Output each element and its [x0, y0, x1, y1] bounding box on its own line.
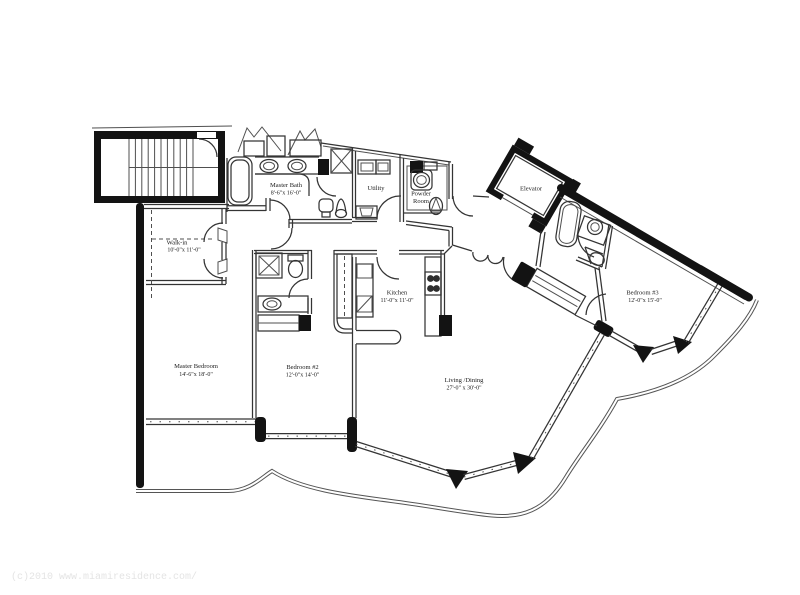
svg-text:10'-0"x 11'-0": 10'-0"x 11'-0" — [167, 248, 201, 254]
svg-text:11'-0"x 11'-0": 11'-0"x 11'-0" — [380, 298, 414, 304]
svg-text:12'-0"x 14'-0": 12'-0"x 14'-0" — [286, 373, 320, 379]
svg-text:Utility: Utility — [368, 185, 386, 192]
svg-text:Living /Dining: Living /Dining — [445, 377, 485, 384]
svg-text:Master Bedroom: Master Bedroom — [174, 363, 218, 370]
svg-text:Powder: Powder — [411, 191, 432, 198]
svg-text:Elevator: Elevator — [520, 186, 543, 193]
svg-text:8'-6"x 16'-0": 8'-6"x 16'-0" — [271, 191, 302, 197]
svg-text:Bedroom #3: Bedroom #3 — [626, 290, 658, 297]
svg-text:27'-0" x 30'-0": 27'-0" x 30'-0" — [446, 386, 482, 392]
svg-text:12'-0"x 15'-0": 12'-0"x 15'-0" — [628, 298, 662, 304]
svg-text:Bedroom #2: Bedroom #2 — [286, 364, 318, 371]
svg-text:Kitchen: Kitchen — [387, 290, 408, 297]
svg-text:Walk-in: Walk-in — [167, 240, 189, 247]
svg-text:Master Bath: Master Bath — [270, 182, 303, 189]
svg-text:Room: Room — [413, 198, 429, 205]
svg-text:(c)2010 www.miamiresidence.com: (c)2010 www.miamiresidence.com/ — [11, 571, 197, 583]
svg-text:14'-6"x 18'-0": 14'-6"x 18'-0" — [179, 372, 213, 378]
